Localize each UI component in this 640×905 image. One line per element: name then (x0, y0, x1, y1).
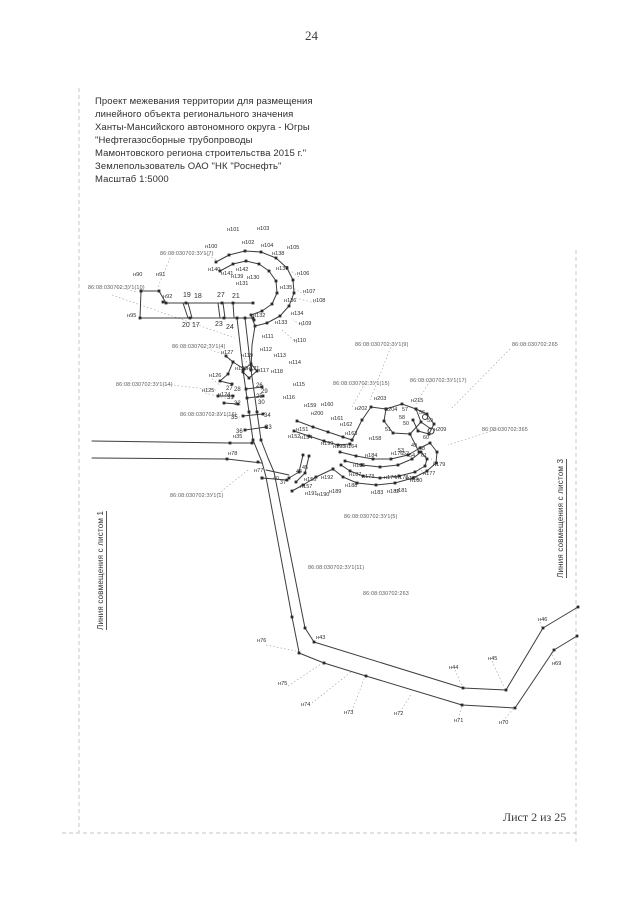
point-number-label: 28 (234, 387, 241, 393)
point-label: н215 (411, 398, 423, 404)
point-label: н173 (362, 474, 374, 480)
point-label: н104 (261, 243, 273, 249)
survey-point (223, 317, 226, 320)
point-label: н76 (257, 638, 266, 644)
point-number-label: 56 (419, 410, 425, 416)
survey-point (365, 675, 368, 678)
point-label: н77 (254, 468, 263, 474)
point-label: н141 (221, 271, 233, 277)
survey-point (271, 303, 274, 306)
survey-point (417, 430, 420, 433)
point-label: н204 (385, 407, 397, 413)
parcel-cadastral-label: 86:08:030702:ЗУ1(4) (172, 344, 226, 350)
survey-point (189, 317, 192, 320)
survey-point (256, 411, 259, 414)
survey-point (232, 263, 235, 266)
boundary-line (220, 356, 233, 384)
parcel-cadastral-label: 86:08:030702:ЗУ1(15) (333, 381, 390, 387)
point-number-label: 24 (226, 324, 234, 331)
point-label: н179 (433, 462, 445, 468)
leader-line (400, 693, 412, 712)
leader-line (244, 358, 249, 366)
point-number-label: 57 (402, 407, 408, 413)
survey-point (251, 442, 254, 445)
survey-point (248, 377, 251, 380)
point-label: н133 (275, 320, 287, 326)
survey-point (462, 687, 465, 690)
survey-point (275, 280, 278, 283)
survey-point (390, 458, 393, 461)
point-label: н44 (449, 665, 458, 671)
leader-line (455, 670, 462, 686)
point-number-label: 51 (385, 427, 391, 433)
point-label: н108 (313, 298, 325, 304)
survey-point (244, 429, 247, 432)
point-label: н138 (272, 251, 284, 257)
point-number-label: 20 (182, 322, 190, 329)
survey-point (261, 310, 264, 313)
point-label: н177 (423, 471, 435, 477)
point-label: н71 (454, 718, 463, 724)
point-label: н111 (262, 334, 274, 340)
survey-point (268, 270, 271, 273)
survey-point (553, 649, 556, 652)
survey-point (250, 363, 253, 366)
point-label: н192 (321, 475, 333, 481)
boundary-line (243, 414, 263, 416)
leader-line (492, 661, 504, 687)
boundary-line (223, 303, 225, 318)
survey-point (414, 471, 417, 474)
survey-point (397, 464, 400, 467)
boundary-line (218, 303, 220, 318)
point-label: н112 (260, 347, 272, 353)
point-label: н181 (395, 488, 407, 494)
survey-point (361, 419, 364, 422)
survey-map: н100н101н102н103н104н105н138н137н106н135… (0, 0, 640, 905)
point-label: н142 (236, 267, 248, 273)
survey-point (379, 477, 382, 480)
point-number-label: 30 (258, 400, 265, 406)
point-label: н202 (355, 406, 367, 412)
point-label: н140 (208, 267, 220, 273)
point-label: н158 (369, 436, 381, 442)
survey-point (514, 707, 517, 710)
survey-point (226, 458, 229, 461)
boundary-line (233, 303, 234, 318)
survey-point (292, 279, 295, 282)
point-number-label: 54 (409, 453, 415, 459)
survey-point (246, 397, 249, 400)
point-label: н200 (311, 411, 323, 417)
survey-point (394, 482, 397, 485)
survey-point (298, 652, 301, 655)
point-label: н159 (304, 403, 316, 409)
survey-point (332, 468, 335, 471)
survey-point (139, 317, 142, 320)
parcel-cadastral-label: 86:08:030702:ЗУ1(5) (344, 514, 398, 520)
point-label: н116 (283, 395, 295, 401)
parcel-cadastral-label: 86:08:030702:ЗУ1(10) (88, 285, 145, 291)
survey-point (291, 490, 294, 493)
parcel-cadastral-label: 86:08:030702:ЗУ1(16) (180, 412, 237, 418)
point-label: н174 (384, 475, 396, 481)
point-label: н92 (163, 294, 172, 300)
point-number-label: 36 (236, 429, 243, 435)
point-label: н185 (353, 463, 365, 469)
point-label: н69 (552, 661, 561, 667)
point-number-label: 59 (427, 418, 433, 424)
point-number-label: 18 (194, 293, 202, 300)
point-label: н132 (253, 313, 265, 319)
point-label: н189 (329, 489, 341, 495)
point-label: н134 (291, 311, 303, 317)
boundary-line (245, 427, 266, 430)
parcel-cadastral-label: 86:08:030702:ЗУ1(9) (355, 342, 409, 348)
survey-point (505, 689, 508, 692)
point-number-label: 61 (421, 453, 427, 459)
boundary-line (183, 303, 188, 318)
parcel-cadastral-label: 86:08:030702:ЗУ1(17) (410, 378, 467, 384)
point-label: н203 (374, 396, 386, 402)
point-number-label: 49 (411, 443, 417, 449)
survey-point (542, 627, 545, 630)
survey-point (433, 423, 436, 426)
point-label: н154 (300, 435, 312, 441)
parcel-cadastral-label: 86:08:030702:ЗУ1(14) (116, 382, 173, 388)
survey-point (165, 302, 168, 305)
point-label: н130 (247, 275, 259, 281)
point-label: н115 (293, 382, 305, 388)
survey-point (409, 433, 412, 436)
survey-point (351, 439, 354, 442)
point-label: н131 (236, 281, 248, 287)
point-label: н152 (288, 434, 300, 440)
point-label: н126 (209, 373, 221, 379)
parcel-cadastral-label: 86:08:030702:263 (363, 591, 409, 597)
survey-point (296, 420, 299, 423)
point-label: н95 (127, 313, 136, 319)
survey-point (245, 388, 248, 391)
point-number-label: 27 (217, 292, 225, 299)
leader-line (288, 664, 321, 686)
survey-point (286, 479, 289, 482)
point-label: н190 (317, 492, 329, 498)
point-label: н113 (274, 353, 286, 359)
leader-line (352, 679, 364, 711)
point-label: н188 (345, 483, 357, 489)
survey-point (288, 305, 291, 308)
point-label: н72 (394, 711, 403, 717)
survey-point (228, 254, 231, 257)
match-line-label-sheet-3: Линия совмещения с листом 3 (556, 459, 567, 578)
survey-point (342, 476, 345, 479)
boundary-line (266, 470, 289, 475)
point-label: н73 (344, 710, 353, 716)
point-label: н127 (221, 350, 233, 356)
parcel-cadastral-label: 86:08:030702:265 (512, 342, 558, 348)
point-number-label: 23 (215, 321, 223, 328)
survey-point (242, 415, 245, 418)
survey-point (248, 411, 251, 414)
match-line-label-sheet-1: Линия совмещения с листом 1 (96, 511, 107, 630)
point-label: н184 (365, 453, 377, 459)
point-number-label: 19 (183, 292, 191, 299)
survey-point (231, 383, 234, 386)
survey-point (252, 439, 255, 442)
scanned-document-page: 24 Проект межевания территории для разме… (0, 0, 640, 905)
point-label: н109 (299, 321, 311, 327)
leader-line (312, 672, 351, 703)
point-label: н135 (280, 285, 292, 291)
point-label: н164 (345, 444, 357, 450)
survey-point (276, 292, 279, 295)
survey-point (412, 419, 415, 422)
survey-point (260, 251, 263, 254)
sheet-number-label: Лист 2 из 25 (503, 810, 566, 825)
survey-point (424, 465, 427, 468)
point-number-label: 34 (264, 413, 271, 419)
survey-point (232, 302, 235, 305)
survey-point (266, 322, 269, 325)
point-label: н199 (321, 441, 333, 447)
survey-point (304, 472, 307, 475)
point-number-label: 17 (192, 322, 200, 329)
leader-line (266, 645, 296, 651)
point-label: н107 (303, 289, 315, 295)
point-number-label: 27 (226, 386, 233, 392)
point-label: н160 (321, 402, 333, 408)
point-label: н70 (499, 720, 508, 726)
point-label: н106 (297, 271, 309, 277)
survey-point (221, 302, 224, 305)
point-label: н191 (305, 491, 317, 497)
survey-point (261, 477, 264, 480)
point-label: н157 (300, 484, 312, 490)
point-label: н91 (156, 272, 165, 278)
survey-point (383, 420, 386, 423)
boundary-line (92, 458, 262, 463)
survey-point (158, 290, 161, 293)
survey-point (308, 455, 311, 458)
survey-point (323, 662, 326, 665)
survey-point (275, 257, 278, 260)
survey-point (327, 431, 330, 434)
survey-point (244, 317, 247, 320)
survey-point (313, 641, 316, 644)
survey-point (219, 380, 222, 383)
boundary-line (299, 636, 577, 708)
point-label: н75 (278, 681, 287, 687)
point-number-label: 48 (419, 446, 425, 452)
point-number-label: 33 (265, 425, 272, 431)
point-label: н100 (205, 244, 217, 250)
point-label: н137 (276, 266, 288, 272)
point-label: н90 (133, 272, 142, 278)
point-label: н151 (296, 427, 308, 433)
point-label: н46 (538, 617, 547, 623)
leader-line (226, 357, 232, 362)
survey-point (340, 464, 343, 467)
survey-point (576, 635, 579, 638)
leader-line (218, 470, 248, 494)
survey-point (355, 455, 358, 458)
survey-point (379, 466, 382, 469)
survey-point (370, 406, 373, 409)
point-label: н136 (284, 298, 296, 304)
point-number-label: 37 (280, 480, 286, 486)
survey-point (245, 260, 248, 263)
survey-point (304, 627, 307, 630)
survey-point (252, 302, 255, 305)
survey-point (293, 430, 296, 433)
survey-point (293, 292, 296, 295)
point-label: н78 (228, 451, 237, 457)
survey-point (279, 315, 282, 318)
survey-point (302, 454, 305, 457)
survey-point (342, 436, 345, 439)
point-label: н105 (287, 245, 299, 251)
point-label: н45 (488, 656, 497, 662)
survey-point (253, 319, 256, 322)
survey-point (392, 432, 395, 435)
survey-point (229, 442, 232, 445)
survey-point (236, 317, 239, 320)
survey-point (401, 403, 404, 406)
point-number-label: 40 (273, 476, 279, 482)
point-label: н114 (289, 360, 301, 366)
point-label: н198 (333, 444, 345, 450)
survey-point (223, 402, 226, 405)
survey-point (227, 373, 230, 376)
survey-point (185, 302, 188, 305)
point-label: н175 (406, 476, 418, 482)
survey-point (295, 481, 298, 484)
survey-point (162, 301, 165, 304)
survey-point (257, 461, 260, 464)
survey-point (312, 426, 315, 429)
point-label: н110 (294, 338, 306, 344)
point-label: н102 (242, 240, 254, 246)
point-number-label: 32 (234, 401, 241, 407)
point-label: н209 (434, 427, 446, 433)
parcel-cadastral-label: 86:08:030702:ЗУ1(7) (160, 251, 214, 257)
survey-point (429, 442, 432, 445)
leader-line (370, 344, 392, 400)
point-number-label: 45 (302, 465, 308, 471)
parcel-cadastral-label: 86:08:030702:ЗУ1(11) (308, 565, 364, 571)
point-number-label: 50 (403, 421, 409, 427)
point-label: н74 (301, 702, 310, 708)
parcel-cadastral-label: 86:08:030702:365 (482, 427, 528, 433)
point-label: н162 (340, 422, 352, 428)
survey-point (244, 250, 247, 253)
point-label: н125 (202, 388, 214, 394)
point-label: н120 (235, 366, 247, 372)
point-label: н163 (345, 431, 357, 437)
point-label: н121 (247, 366, 259, 372)
survey-point (436, 451, 439, 454)
point-number-label: 21 (232, 293, 240, 300)
survey-point (232, 361, 235, 364)
point-label: н156 (304, 477, 316, 483)
point-label: н187 (349, 472, 361, 478)
boundary-line (188, 303, 192, 318)
point-label: н183 (371, 490, 383, 496)
survey-point (577, 606, 580, 609)
survey-point (215, 261, 218, 264)
survey-point (375, 484, 378, 487)
survey-point (461, 704, 464, 707)
survey-point (415, 408, 418, 411)
survey-point (260, 439, 263, 442)
boundary-line (220, 261, 277, 315)
parcel-cadastral-label: 86:08:030702:ЗУ1(1) (170, 493, 224, 499)
point-label: н118 (271, 369, 283, 375)
survey-point (291, 616, 294, 619)
survey-point (339, 451, 342, 454)
point-label: н43 (316, 635, 325, 641)
survey-point (258, 263, 261, 266)
point-label: н101 (227, 227, 239, 233)
point-label: н119 (241, 353, 253, 359)
point-number-label: 60 (423, 435, 429, 441)
point-label: н103 (257, 226, 269, 232)
survey-point (344, 460, 347, 463)
